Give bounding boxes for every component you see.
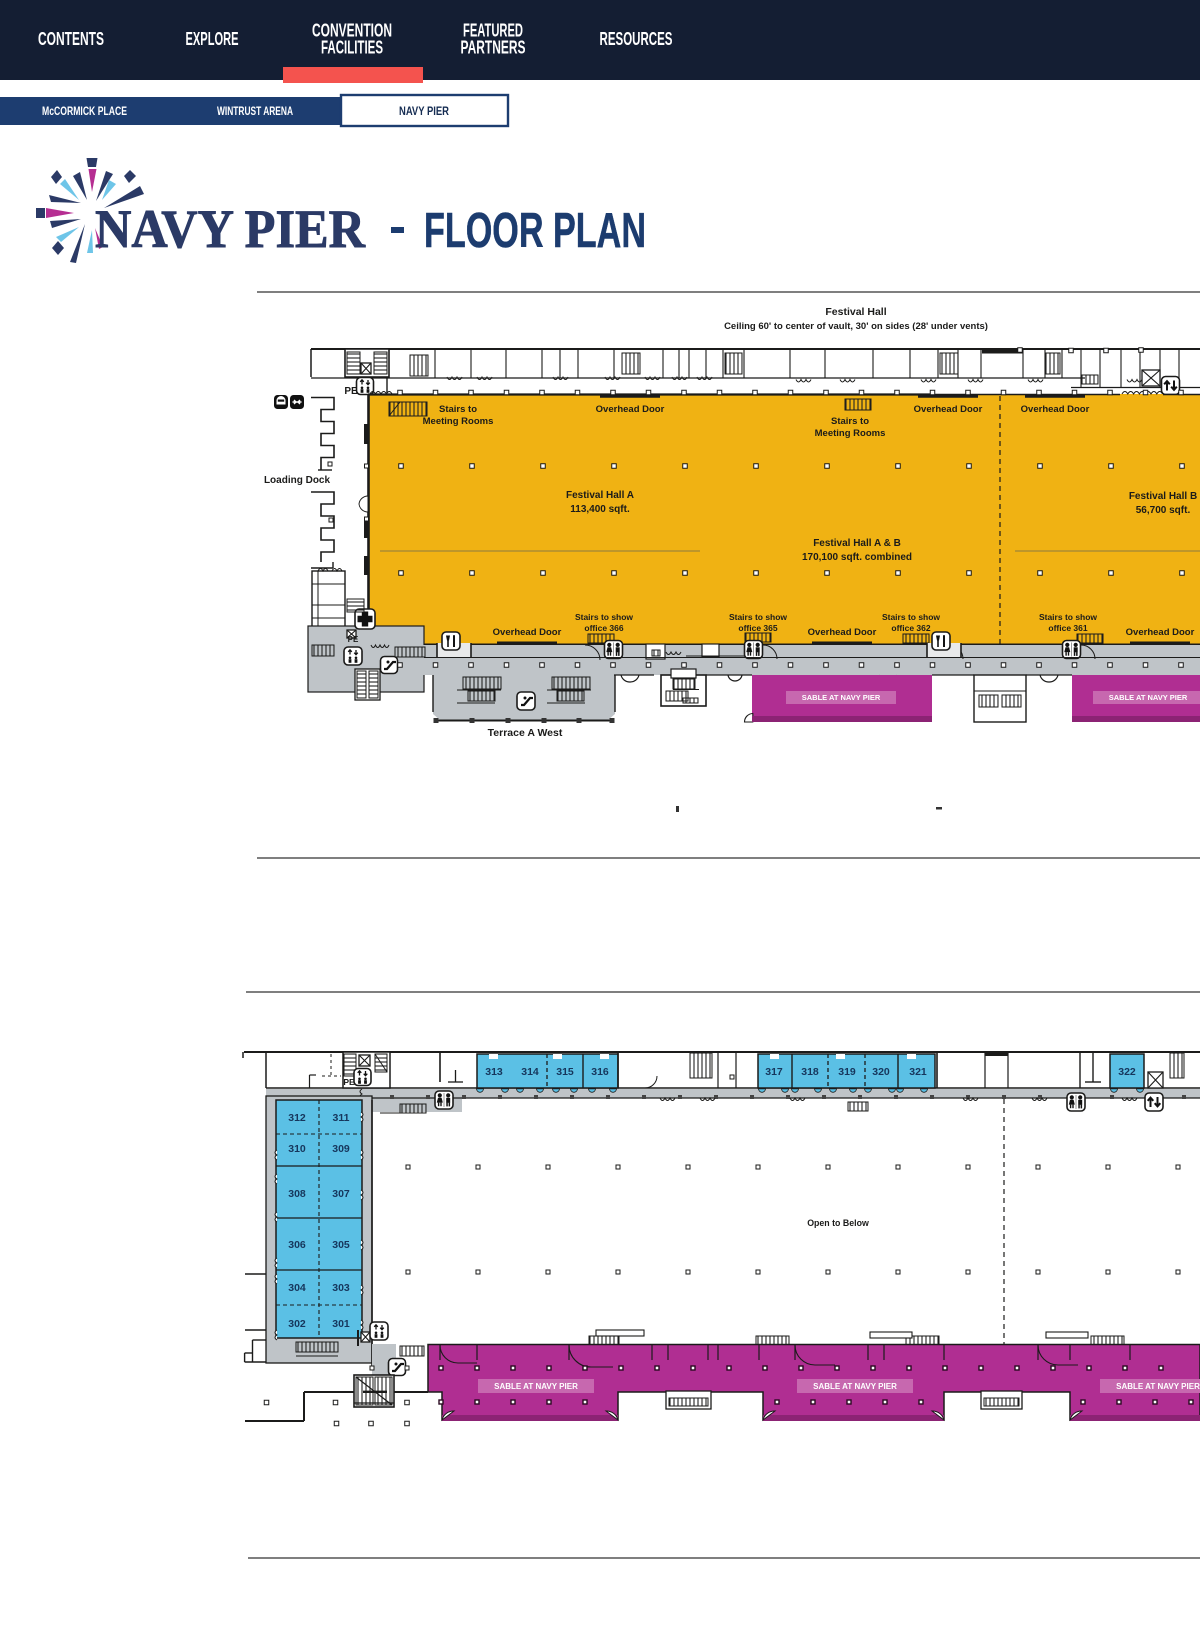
svg-text:316: 316 <box>591 1066 609 1078</box>
svg-text:312: 312 <box>288 1112 306 1124</box>
svg-text:320: 320 <box>872 1066 890 1078</box>
svg-text:Festival Hall A: Festival Hall A <box>566 490 634 501</box>
svg-text:Overhead Door: Overhead Door <box>914 404 983 415</box>
svg-text:Festival Hall: Festival Hall <box>825 306 886 318</box>
svg-text:318: 318 <box>801 1066 819 1078</box>
svg-text:308: 308 <box>288 1188 306 1200</box>
svg-text:304: 304 <box>288 1282 306 1294</box>
svg-text:Overhead Door: Overhead Door <box>596 404 665 415</box>
svg-text:319: 319 <box>838 1066 856 1078</box>
svg-text:Overhead Door: Overhead Door <box>493 627 562 638</box>
svg-text:office 365: office 365 <box>738 623 777 633</box>
svg-text:305: 305 <box>332 1239 350 1251</box>
svg-text:FLOOR PLAN: FLOOR PLAN <box>424 204 646 258</box>
svg-text:321: 321 <box>909 1066 927 1078</box>
svg-text:322: 322 <box>1118 1066 1136 1078</box>
svg-text:Overhead Door: Overhead Door <box>1126 627 1195 638</box>
svg-text:56,700 sqft.: 56,700 sqft. <box>1136 505 1191 516</box>
svg-text:Overhead Door: Overhead Door <box>1021 404 1090 415</box>
svg-text:Stairs to show: Stairs to show <box>882 612 940 622</box>
svg-text:310: 310 <box>288 1143 306 1155</box>
svg-text:NAVY PIER: NAVY PIER <box>399 104 449 118</box>
svg-text:McCORMICK PLACE: McCORMICK PLACE <box>42 104 127 118</box>
svg-text:315: 315 <box>556 1066 574 1078</box>
svg-text:307: 307 <box>332 1188 350 1200</box>
svg-text:Stairs to show: Stairs to show <box>575 612 633 622</box>
svg-text:EXPLORE: EXPLORE <box>186 29 239 49</box>
svg-text:SABLE AT NAVY PIER: SABLE AT NAVY PIER <box>813 1382 897 1391</box>
svg-text:office 366: office 366 <box>584 623 623 633</box>
svg-text:PE: PE <box>348 635 359 644</box>
svg-text:RESOURCES: RESOURCES <box>600 29 673 49</box>
svg-text:PARTNERS: PARTNERS <box>461 38 526 58</box>
svg-text:313: 313 <box>485 1066 503 1078</box>
svg-text:SABLE AT NAVY PIER: SABLE AT NAVY PIER <box>494 1382 578 1391</box>
svg-text:Overhead Door: Overhead Door <box>808 627 877 638</box>
svg-text:Loading Dock: Loading Dock <box>264 475 331 486</box>
svg-text:Meeting Rooms: Meeting Rooms <box>423 416 494 427</box>
svg-text:Stairs to: Stairs to <box>831 416 869 427</box>
svg-text:309: 309 <box>332 1143 350 1155</box>
svg-text:113,400 sqft.: 113,400 sqft. <box>570 504 630 515</box>
svg-text:office 362: office 362 <box>891 623 930 633</box>
svg-text:SABLE AT NAVY PIER: SABLE AT NAVY PIER <box>1109 693 1188 702</box>
svg-text:314: 314 <box>521 1066 539 1078</box>
svg-text:SABLE AT NAVY PIER: SABLE AT NAVY PIER <box>802 693 881 702</box>
svg-text:306: 306 <box>288 1239 306 1251</box>
svg-text:Ceiling 60' to center of vault: Ceiling 60' to center of vault, 30' on s… <box>724 321 988 332</box>
svg-text:NAVY PIER: NAVY PIER <box>95 199 366 259</box>
svg-text:WINTRUST ARENA: WINTRUST ARENA <box>217 104 293 118</box>
svg-text:Terrace A West: Terrace A West <box>488 727 563 739</box>
svg-text:302: 302 <box>288 1318 306 1330</box>
svg-text:301: 301 <box>332 1318 350 1330</box>
svg-text:Stairs to show: Stairs to show <box>1039 612 1097 622</box>
svg-text:170,100 sqft. combined: 170,100 sqft. combined <box>802 552 912 563</box>
svg-text:FACILITIES: FACILITIES <box>321 38 383 58</box>
svg-text:Festival Hall A & B: Festival Hall A & B <box>813 538 901 549</box>
svg-text:office 361: office 361 <box>1048 623 1087 633</box>
svg-text:303: 303 <box>332 1282 350 1294</box>
svg-text:Meeting Rooms: Meeting Rooms <box>815 428 886 439</box>
svg-text:317: 317 <box>765 1066 783 1078</box>
svg-text:Festival Hall B: Festival Hall B <box>1129 491 1197 502</box>
svg-text:Open to Below: Open to Below <box>807 1218 869 1228</box>
svg-text:SABLE AT NAVY PIER: SABLE AT NAVY PIER <box>1116 1382 1200 1391</box>
svg-text:CONTENTS: CONTENTS <box>38 29 104 49</box>
svg-text:Stairs to show: Stairs to show <box>729 612 787 622</box>
svg-text:311: 311 <box>333 1112 350 1124</box>
svg-text:Stairs to: Stairs to <box>439 404 477 415</box>
